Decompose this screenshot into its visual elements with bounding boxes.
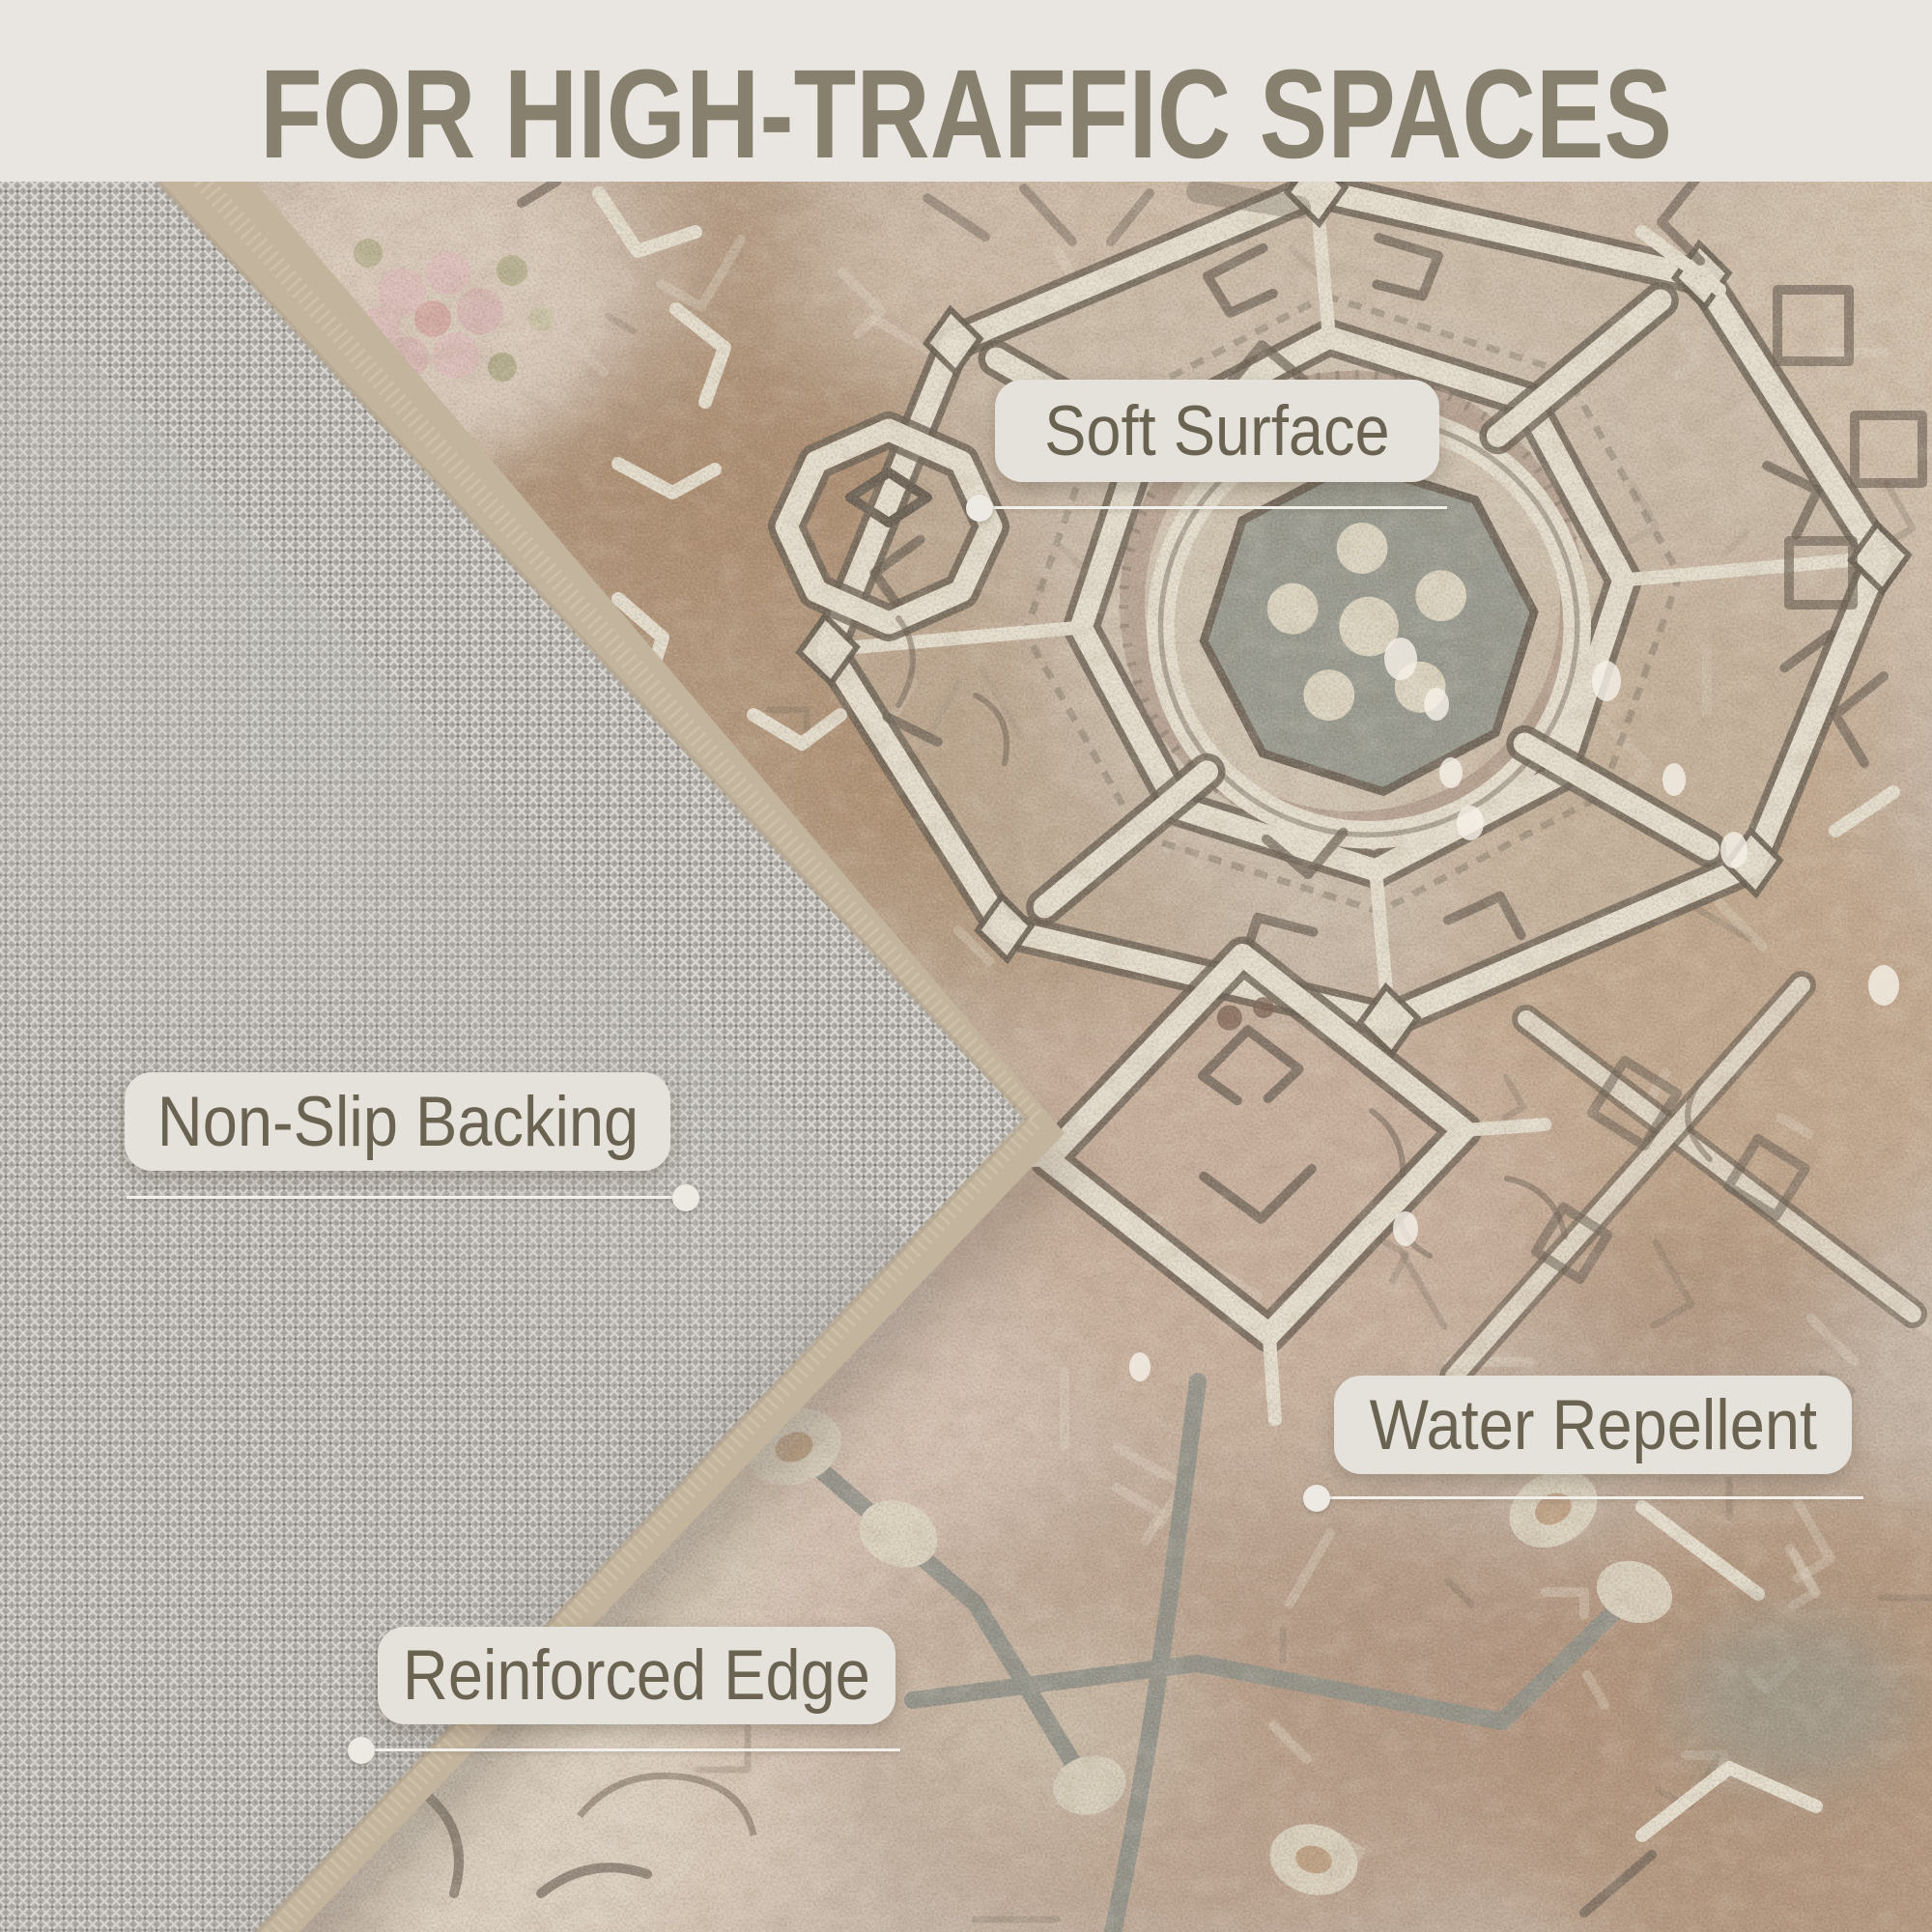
svg-text:FOR HIGH-TRAFFIC SPACES: FOR HIGH-TRAFFIC SPACES: [260, 43, 1672, 185]
